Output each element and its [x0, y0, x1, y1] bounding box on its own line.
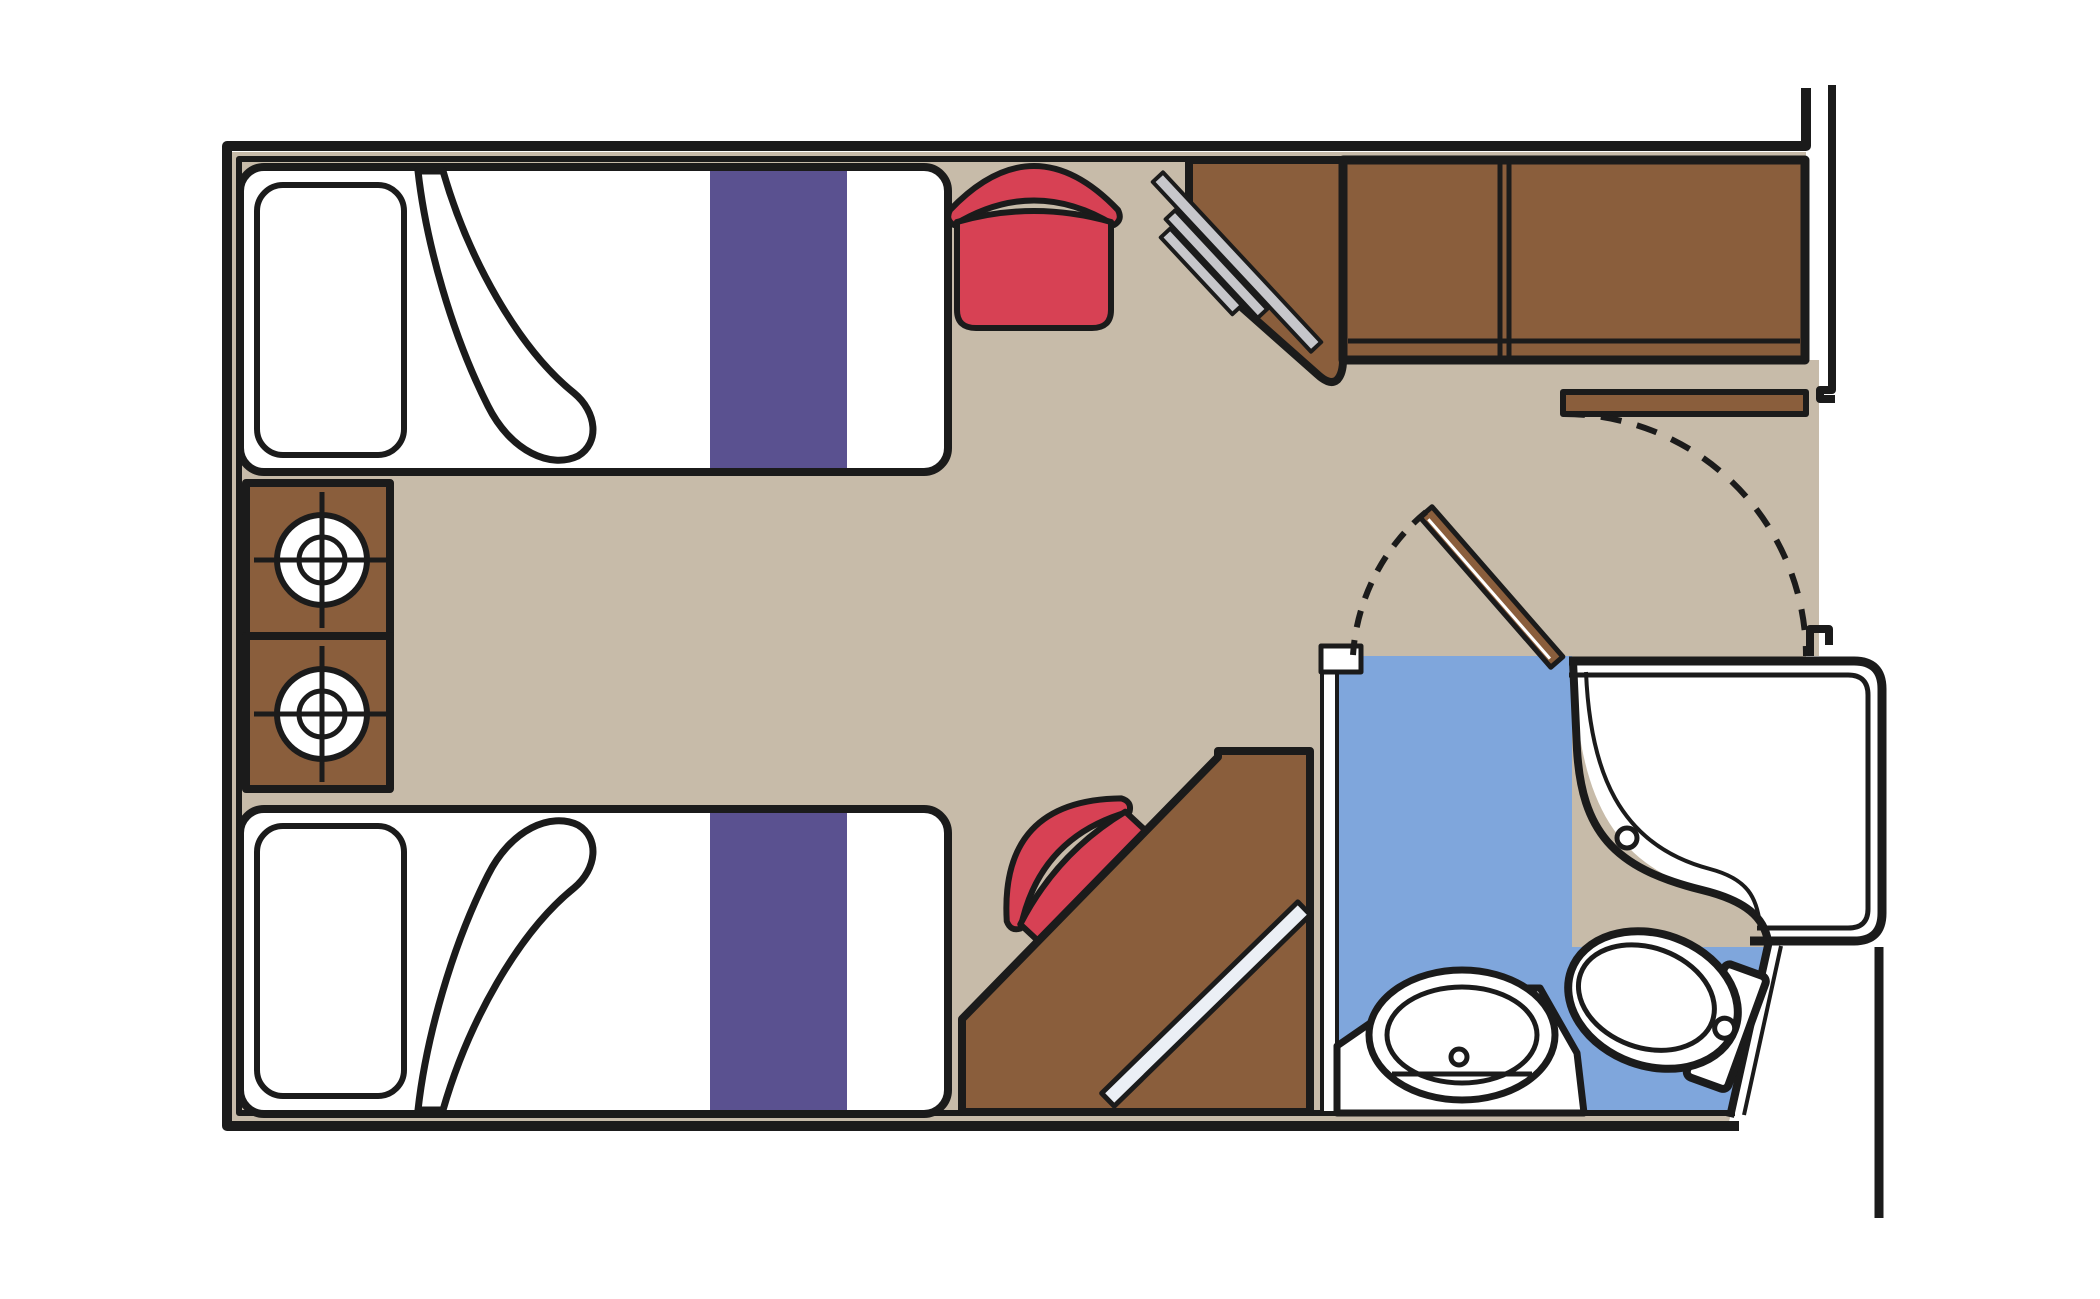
entry-door-jamb — [1810, 629, 1829, 656]
floor-plan-page — [0, 0, 2100, 1299]
shower-drain-icon — [1617, 828, 1637, 848]
wardrobe — [1343, 160, 1805, 360]
bed-bottom — [240, 809, 948, 1114]
hull-wall-upper — [1820, 85, 1835, 399]
floor-plan-canvas — [0, 0, 2100, 1299]
chair-top — [948, 166, 1120, 328]
wardrobe-body — [1343, 160, 1805, 360]
nightstands — [246, 483, 390, 789]
bed-top — [240, 167, 948, 472]
sink-drain-icon — [1451, 1049, 1467, 1065]
entry-door — [1563, 392, 1806, 414]
plan-root — [227, 85, 1895, 1218]
